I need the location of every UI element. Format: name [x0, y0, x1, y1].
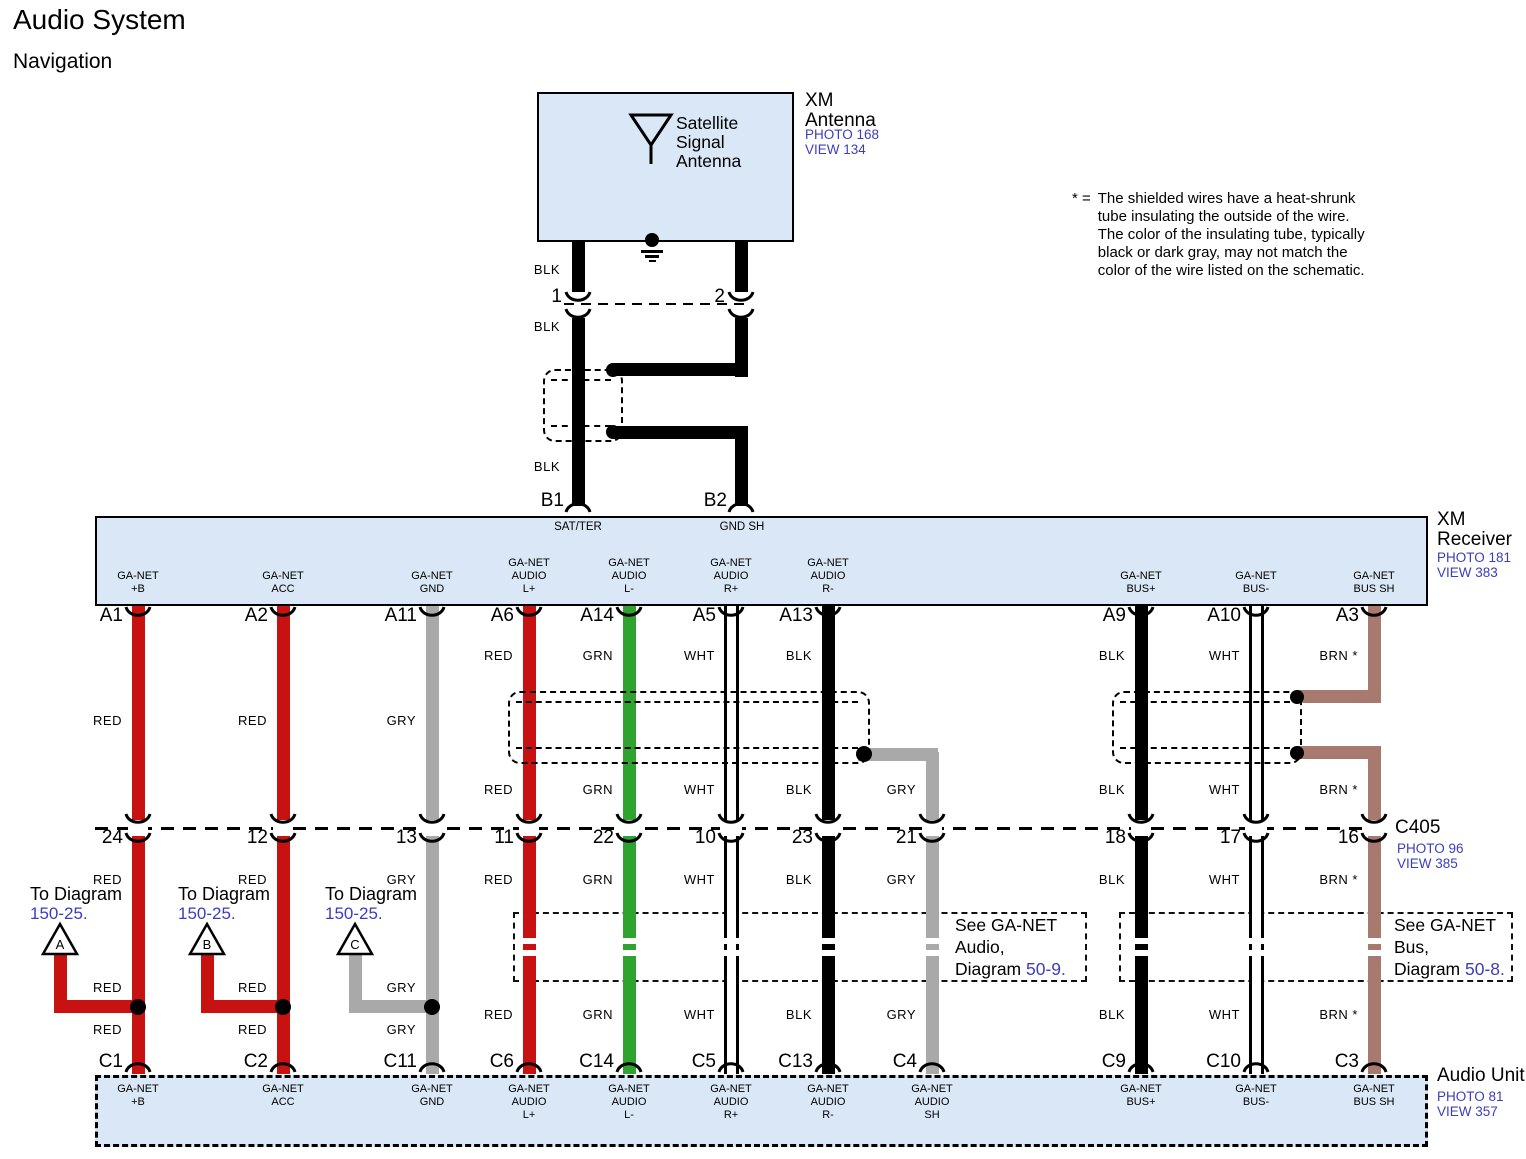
diagram-ref-link[interactable]: 150-25.: [178, 904, 236, 924]
wire-color-label: RED: [42, 1022, 122, 1037]
unit-pin-name-line: AUDIO: [877, 1096, 987, 1109]
wire-color-label: BRN *: [1278, 782, 1358, 797]
receiver-pin-name: GA-NETAUDIOR+: [676, 557, 786, 596]
connector-glyph: [716, 1060, 746, 1074]
junction-dot: [1290, 746, 1304, 760]
wire-color-label: WHT: [1160, 648, 1240, 663]
unit-pin-name-line: GA-NET: [676, 1083, 786, 1096]
svg-text:B: B: [203, 937, 212, 952]
connector-glyph: [268, 812, 298, 826]
receiver-pin-id: A10: [1171, 605, 1241, 627]
receiver-pin-name-line: GND: [377, 583, 487, 596]
connector-glyph: [123, 1060, 153, 1074]
unit-pin-id: C10: [1171, 1051, 1241, 1073]
receiver-pin-name-line: AUDIO: [773, 570, 883, 583]
unit-pin-name: GA-NETAUDIOR-: [773, 1083, 883, 1122]
unit-pin-name: GA-NETBUS SH: [1319, 1083, 1429, 1109]
connector-glyph: [1241, 812, 1271, 826]
unit-pin-id: C13: [743, 1051, 813, 1073]
wire-color-label: GRN: [533, 1007, 613, 1022]
receiver-pin-name-line: L-: [574, 583, 684, 596]
wire-color-label: RED: [433, 1007, 513, 1022]
c405-pin-id: 11: [444, 827, 514, 849]
wire-color-label: GRY: [336, 713, 416, 728]
wire-color-label: GRY: [336, 1022, 416, 1037]
wire-break: [1130, 938, 1152, 944]
unit-pin-name-line: GA-NET: [1201, 1083, 1311, 1096]
receiver-pin-name-line: AUDIO: [676, 570, 786, 583]
receiver-pin-id: A14: [544, 605, 614, 627]
receiver-pin-name-line: AUDIO: [474, 570, 584, 583]
wire-break: [817, 950, 839, 956]
wire-color-label: WHT: [635, 782, 715, 797]
connector-glyph: [268, 605, 298, 619]
wire-break: [1245, 950, 1267, 956]
receiver-pin-name-line: GA-NET: [1319, 570, 1429, 583]
wire-break: [921, 950, 943, 956]
receiver-pin-name-line: GA-NET: [574, 557, 684, 570]
wire-color-label: BLK: [1045, 872, 1125, 887]
shield-symbol-rim: [516, 701, 858, 703]
connector-glyph: [268, 1060, 298, 1074]
unit-pin-name-line: L-: [574, 1109, 684, 1122]
connector-glyph: [1359, 1060, 1389, 1074]
connector-glyph: [813, 605, 843, 619]
connector-glyph: [716, 605, 746, 619]
receiver-pin-name-line: GA-NET: [1201, 570, 1311, 583]
connector-glyph: [726, 307, 756, 321]
receiver-pin-id: A9: [1056, 605, 1126, 627]
connector-glyph: [563, 500, 593, 514]
receiver-pin-name-line: +B: [83, 583, 193, 596]
unit-pin-name-line: GA-NET: [877, 1083, 987, 1096]
unit-pin-name-line: AUDIO: [773, 1096, 883, 1109]
receiver-pin-name-line: GA-NET: [228, 570, 338, 583]
junction-dot: [606, 363, 620, 377]
connector-glyph: [813, 831, 843, 845]
wire-color-label: BLK: [732, 872, 812, 887]
to-diagram-label: To Diagram: [178, 884, 270, 905]
wire-color-label: BLK: [1045, 782, 1125, 797]
receiver-pin-name-line: GA-NET: [377, 570, 487, 583]
unit-pin-name-line: ACC: [228, 1096, 338, 1109]
connector-glyph: [614, 812, 644, 826]
receiver-pin-name: GA-NETAUDIOL+: [474, 557, 584, 596]
wire-layer: A124C1REDREDGA-NET+BGA-NET+BA212C2REDRED…: [0, 0, 1526, 1159]
unit-pin-name-line: R+: [676, 1109, 786, 1122]
unit-pin-name: GA-NETGND: [377, 1083, 487, 1109]
connector-glyph: [726, 290, 756, 304]
connector-glyph: [514, 605, 544, 619]
connector-glyph: [1241, 605, 1271, 619]
wire-color-label: GRN: [533, 648, 613, 663]
receiver-pin-id: A13: [743, 605, 813, 627]
unit-pin-name: GA-NETBUS+: [1086, 1083, 1196, 1109]
connector-glyph: [417, 605, 447, 619]
junction-dot: [856, 746, 872, 762]
unit-pin-name-line: GA-NET: [83, 1083, 193, 1096]
connector-glyph: [726, 500, 756, 514]
antenna-wire-ground: [613, 426, 748, 439]
branch-triangle: B: [187, 921, 227, 957]
wire-break: [1130, 950, 1152, 956]
shield-symbol-rim: [551, 425, 611, 427]
receiver-pin-name-line: GA-NET: [83, 570, 193, 583]
receiver-pin-name-line: BUS SH: [1319, 583, 1429, 596]
unit-pin-name: GA-NETAUDIOL-: [574, 1083, 684, 1122]
unit-pin-name-line: +B: [83, 1096, 193, 1109]
wire-break: [921, 938, 943, 944]
c405-pin-id: 17: [1171, 827, 1241, 849]
wire-color-label: RED: [187, 980, 267, 995]
junction-dot: [606, 425, 620, 439]
antenna-wire-ground: [735, 426, 748, 506]
shield-symbol-rim: [516, 747, 858, 749]
connector-glyph: [917, 831, 947, 845]
branch-triangle: A: [40, 921, 80, 957]
connector-glyph: [614, 831, 644, 845]
wire-color-label: GRY: [836, 1007, 916, 1022]
wire-color-label: WHT: [1160, 1007, 1240, 1022]
unit-pin-name-line: GA-NET: [228, 1083, 338, 1096]
svg-text:C: C: [350, 937, 359, 952]
receiver-pin-name: GA-NETAUDIOR-: [773, 557, 883, 596]
wire-break: [518, 950, 540, 956]
wire-break: [618, 938, 640, 944]
wire-color-label: BLK: [732, 648, 812, 663]
unit-pin-id: C11: [347, 1051, 417, 1073]
receiver-pin-name-line: BUS+: [1086, 583, 1196, 596]
receiver-pin-name: GA-NETBUS-: [1201, 570, 1311, 596]
receiver-pin-id: A11: [347, 605, 417, 627]
wire-segment: [1368, 606, 1381, 703]
unit-pin-name-line: GA-NET: [474, 1083, 584, 1096]
wire-color-label: RED: [42, 980, 122, 995]
unit-pin-id: C5: [646, 1051, 716, 1073]
wire-color-label: BLK: [732, 1007, 812, 1022]
c405-pin-id: 24: [53, 827, 123, 849]
connector-glyph: [123, 831, 153, 845]
receiver-pin-name-line: GA-NET: [676, 557, 786, 570]
unit-pin-name-line: R-: [773, 1109, 883, 1122]
svg-text:A: A: [56, 937, 65, 952]
wire-color-label: BLK: [1045, 1007, 1125, 1022]
receiver-pin-name: GA-NETACC: [228, 570, 338, 596]
wire-color-label: RED: [187, 713, 267, 728]
receiver-pin-name-line: R-: [773, 583, 883, 596]
unit-pin-name-line: GND: [377, 1096, 487, 1109]
unit-pin-id: C4: [847, 1051, 917, 1073]
unit-pin-name: GA-NETAUDIOL+: [474, 1083, 584, 1122]
receiver-pin-name-line: ACC: [228, 583, 338, 596]
unit-pin-name: GA-NETBUS-: [1201, 1083, 1311, 1109]
wire-segment: [1368, 746, 1381, 1074]
c405-pin-id: 12: [198, 827, 268, 849]
connector-glyph: [563, 307, 593, 321]
connector-glyph: [417, 1060, 447, 1074]
to-diagram-label: To Diagram: [30, 884, 122, 905]
wiring-diagram-canvas: Audio System Navigation * = The shielded…: [0, 0, 1526, 1159]
unit-pin-id: C3: [1289, 1051, 1359, 1073]
connector-glyph: [123, 605, 153, 619]
unit-pin-id: C14: [544, 1051, 614, 1073]
wire-break: [1245, 938, 1267, 944]
diagram-ref-link[interactable]: 150-25.: [325, 904, 383, 924]
connector-glyph: [1241, 831, 1271, 845]
receiver-pin-name-line: GA-NET: [1086, 570, 1196, 583]
connector-glyph: [614, 1060, 644, 1074]
wire-color-label: WHT: [635, 872, 715, 887]
connector-glyph: [614, 605, 644, 619]
c405-pin-id: 23: [743, 827, 813, 849]
wire-color-label: WHT: [1160, 782, 1240, 797]
unit-pin-name-line: GA-NET: [773, 1083, 883, 1096]
unit-pin-id: C1: [53, 1051, 123, 1073]
unit-pin-name-line: GA-NET: [1086, 1083, 1196, 1096]
receiver-pin-name: GA-NETBUS SH: [1319, 570, 1429, 596]
wire-break: [518, 938, 540, 944]
wire-color-label: BRN *: [1278, 1007, 1358, 1022]
branch-triangle: C: [335, 921, 375, 957]
unit-pin-name: GA-NET+B: [83, 1083, 193, 1109]
wire-color-label: GRN: [533, 872, 613, 887]
c405-pin-id: 10: [646, 827, 716, 849]
receiver-pin-name: GA-NETBUS+: [1086, 570, 1196, 596]
unit-pin-name-line: BUS SH: [1319, 1096, 1429, 1109]
connector-glyph: [1126, 605, 1156, 619]
unit-pin-name-line: GA-NET: [574, 1083, 684, 1096]
receiver-pin-id: A5: [646, 605, 716, 627]
receiver-pin-name: GA-NETGND: [377, 570, 487, 596]
unit-pin-name: GA-NETAUDIOSH: [877, 1083, 987, 1122]
antenna-wire-ground: [613, 363, 748, 376]
wire-color-label: RED: [433, 872, 513, 887]
c405-pin-id: 16: [1289, 827, 1359, 849]
wire-color-label: WHT: [635, 1007, 715, 1022]
junction-dot: [275, 999, 291, 1015]
unit-pin-id: C9: [1056, 1051, 1126, 1073]
connector-glyph: [514, 831, 544, 845]
wire-break: [817, 938, 839, 944]
connector-glyph: [917, 1060, 947, 1074]
connector-glyph: [563, 290, 593, 304]
unit-pin-name-line: L+: [474, 1109, 584, 1122]
receiver-pin-name-line: GA-NET: [474, 557, 584, 570]
wire-break: [720, 938, 742, 944]
c405-pin-id: 13: [347, 827, 417, 849]
connector-glyph: [1241, 1060, 1271, 1074]
antenna-wire-shield: [572, 240, 585, 292]
connector-glyph: [268, 831, 298, 845]
receiver-pin-id: A3: [1289, 605, 1359, 627]
shield-symbol-rim: [1120, 747, 1290, 749]
connector-glyph: [1359, 812, 1389, 826]
receiver-pin-name-line: AUDIO: [574, 570, 684, 583]
connector-glyph: [813, 1060, 843, 1074]
wire-color-label: BRN *: [1278, 648, 1358, 663]
junction-dot: [1290, 690, 1304, 704]
unit-pin-name-line: BUS+: [1086, 1096, 1196, 1109]
unit-pin-name-line: BUS-: [1201, 1096, 1311, 1109]
wire-color-label: GRY: [336, 980, 416, 995]
unit-pin-name-line: GA-NET: [1319, 1083, 1429, 1096]
wire-color-label: GRY: [836, 782, 916, 797]
connector-glyph: [917, 812, 947, 826]
receiver-pin-id: A6: [444, 605, 514, 627]
wire-segment: [926, 752, 939, 1074]
connector-glyph: [514, 812, 544, 826]
wire-break: [1363, 938, 1385, 944]
wire-color-label: WHT: [1160, 872, 1240, 887]
connector-glyph: [716, 812, 746, 826]
wire-break: [618, 950, 640, 956]
c405-pin-id: 18: [1056, 827, 1126, 849]
receiver-pin-name: GA-NET+B: [83, 570, 193, 596]
wire-color-label: RED: [433, 782, 513, 797]
unit-pin-id: C6: [444, 1051, 514, 1073]
unit-pin-name: GA-NETACC: [228, 1083, 338, 1109]
wire-color-label: RED: [433, 648, 513, 663]
connector-glyph: [1126, 1060, 1156, 1074]
wire-color-label: WHT: [635, 648, 715, 663]
connector-glyph: [514, 1060, 544, 1074]
connector-glyph: [123, 812, 153, 826]
wire-color-label: GRN: [533, 782, 613, 797]
wire-color-label: BLK: [732, 782, 812, 797]
unit-pin-id: C2: [198, 1051, 268, 1073]
unit-pin-name-line: AUDIO: [574, 1096, 684, 1109]
junction-dot: [130, 999, 146, 1015]
connector-glyph: [1359, 605, 1389, 619]
wire-color-label: BLK: [1045, 648, 1125, 663]
receiver-pin-name-line: BUS-: [1201, 583, 1311, 596]
receiver-pin-name-line: R+: [676, 583, 786, 596]
unit-pin-name-line: GA-NET: [377, 1083, 487, 1096]
antenna-wire-ground: [735, 240, 748, 292]
wire-color-label: RED: [42, 713, 122, 728]
shield-symbol-rim: [551, 379, 611, 381]
connector-glyph: [417, 831, 447, 845]
unit-pin-name-line: SH: [877, 1109, 987, 1122]
unit-pin-name: GA-NETAUDIOR+: [676, 1083, 786, 1122]
receiver-pin-name-line: L+: [474, 583, 584, 596]
connector-glyph: [813, 812, 843, 826]
unit-pin-name-line: AUDIO: [676, 1096, 786, 1109]
wire-color-label: RED: [187, 1022, 267, 1037]
connector-glyph: [1126, 812, 1156, 826]
connector-glyph: [1126, 831, 1156, 845]
connector-glyph: [417, 812, 447, 826]
c405-pin-id: 21: [847, 827, 917, 849]
wire-break: [1363, 950, 1385, 956]
c405-pin-id: 22: [544, 827, 614, 849]
to-diagram-label: To Diagram: [325, 884, 417, 905]
wire-color-label: BRN *: [1278, 872, 1358, 887]
receiver-pin-id: A2: [198, 605, 268, 627]
unit-pin-name-line: AUDIO: [474, 1096, 584, 1109]
receiver-pin-name-line: GA-NET: [773, 557, 883, 570]
diagram-ref-link[interactable]: 150-25.: [30, 904, 88, 924]
receiver-pin-id: A1: [53, 605, 123, 627]
connector-glyph: [716, 831, 746, 845]
receiver-pin-name: GA-NETAUDIOL-: [574, 557, 684, 596]
connector-glyph: [1359, 831, 1389, 845]
wire-break: [720, 950, 742, 956]
shield-symbol-rim: [1120, 701, 1290, 703]
wire-color-label: GRY: [836, 872, 916, 887]
